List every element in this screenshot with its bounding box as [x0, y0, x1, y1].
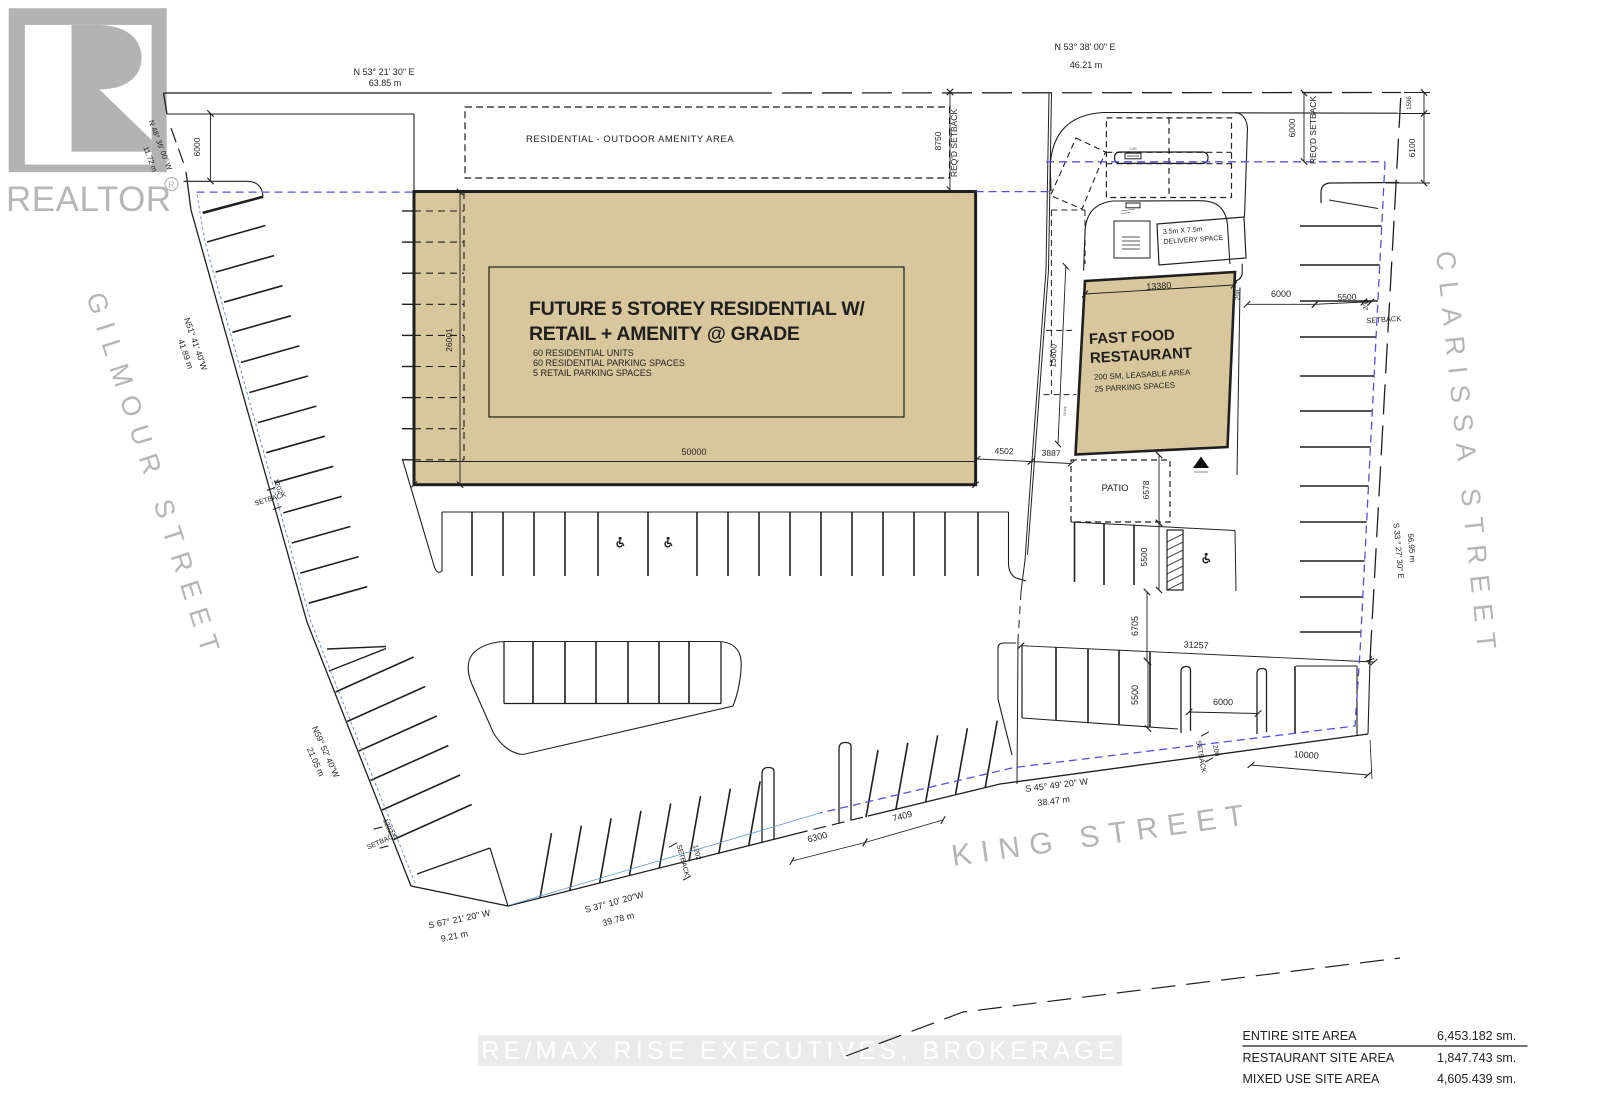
svg-text:60 RESIDENTIAL UNITS: 60 RESIDENTIAL UNITS [533, 348, 634, 358]
svg-text:6000: 6000 [1213, 697, 1233, 707]
svg-text:5500: 5500 [1139, 547, 1149, 566]
svg-text:RE/MAX RISE EXECUTIVES, BROKER: RE/MAX RISE EXECUTIVES, BROKERAGE [481, 1037, 1118, 1065]
svg-text:PATIO: PATIO [1101, 483, 1128, 494]
svg-text:REQ'D SETBACK: REQ'D SETBACK [949, 109, 959, 178]
svg-text:REQ'D SETBACK: REQ'D SETBACK [1308, 96, 1318, 165]
svg-text:1,847.743 sm.: 1,847.743 sm. [1437, 1051, 1516, 1065]
svg-text:R: R [168, 180, 175, 190]
svg-text:15600: 15600 [1047, 344, 1058, 368]
svg-text:10000: 10000 [1293, 749, 1319, 761]
svg-text:1596: 1596 [1407, 96, 1413, 110]
svg-text:MIXED USE SITE AREA: MIXED USE SITE AREA [1243, 1072, 1381, 1086]
svg-text:46.21 m: 46.21 m [1070, 60, 1103, 70]
svg-text:N 53° 38' 00" E: N 53° 38' 00" E [1054, 42, 1115, 52]
svg-text:4502: 4502 [994, 446, 1014, 457]
svg-text:26001: 26001 [444, 328, 454, 352]
svg-text:3887: 3887 [1041, 448, 1061, 459]
svg-text:6578: 6578 [1141, 480, 1151, 499]
svg-text:5 RETAIL PARKING SPACES: 5 RETAIL PARKING SPACES [533, 368, 652, 378]
svg-text:CAR: CAR [1129, 147, 1137, 151]
svg-text:6,453.182 sm.: 6,453.182 sm. [1437, 1029, 1516, 1043]
svg-text:ENTIRE SITE AREA: ENTIRE SITE AREA [1243, 1029, 1358, 1043]
svg-text:13380: 13380 [1146, 280, 1172, 292]
svg-text:6000: 6000 [1287, 118, 1297, 137]
svg-text:8750: 8750 [933, 131, 943, 150]
svg-text:N 53° 21' 30" E: N 53° 21' 30" E [353, 67, 414, 77]
svg-text:4,605.439 sm.: 4,605.439 sm. [1437, 1072, 1516, 1086]
svg-text:6705: 6705 [1130, 616, 1140, 636]
svg-text:50000: 50000 [681, 447, 706, 457]
svg-text:REALTOR: REALTOR [6, 180, 172, 219]
svg-text:60 RESIDENTIAL PARKING SPACES: 60 RESIDENTIAL PARKING SPACES [533, 358, 685, 368]
svg-text:6100: 6100 [1407, 138, 1417, 157]
svg-text:5500: 5500 [1130, 685, 1140, 705]
svg-text:RESTAURANT SITE AREA: RESTAURANT SITE AREA [1243, 1051, 1395, 1065]
svg-text:200: 200 [1363, 299, 1371, 311]
svg-text:298: 298 [1235, 289, 1243, 301]
svg-text:DRIVE: DRIVE [1063, 406, 1068, 416]
svg-text:31257: 31257 [1183, 639, 1208, 650]
svg-text:63.85 m: 63.85 m [369, 78, 402, 88]
svg-text:RESIDENTIAL - OUTDOOR AMENITY: RESIDENTIAL - OUTDOOR AMENITY AREA [526, 134, 734, 145]
svg-text:6000: 6000 [192, 137, 202, 156]
svg-text:6000: 6000 [1271, 289, 1291, 299]
svg-text:5500: 5500 [1337, 292, 1357, 303]
svg-text:FUTURE 5 STOREY RESIDENTIAL W/: FUTURE 5 STOREY RESIDENTIAL W/ [529, 298, 865, 320]
svg-text:RETAIL + AMENITY @ GRADE: RETAIL + AMENITY @ GRADE [529, 323, 800, 345]
